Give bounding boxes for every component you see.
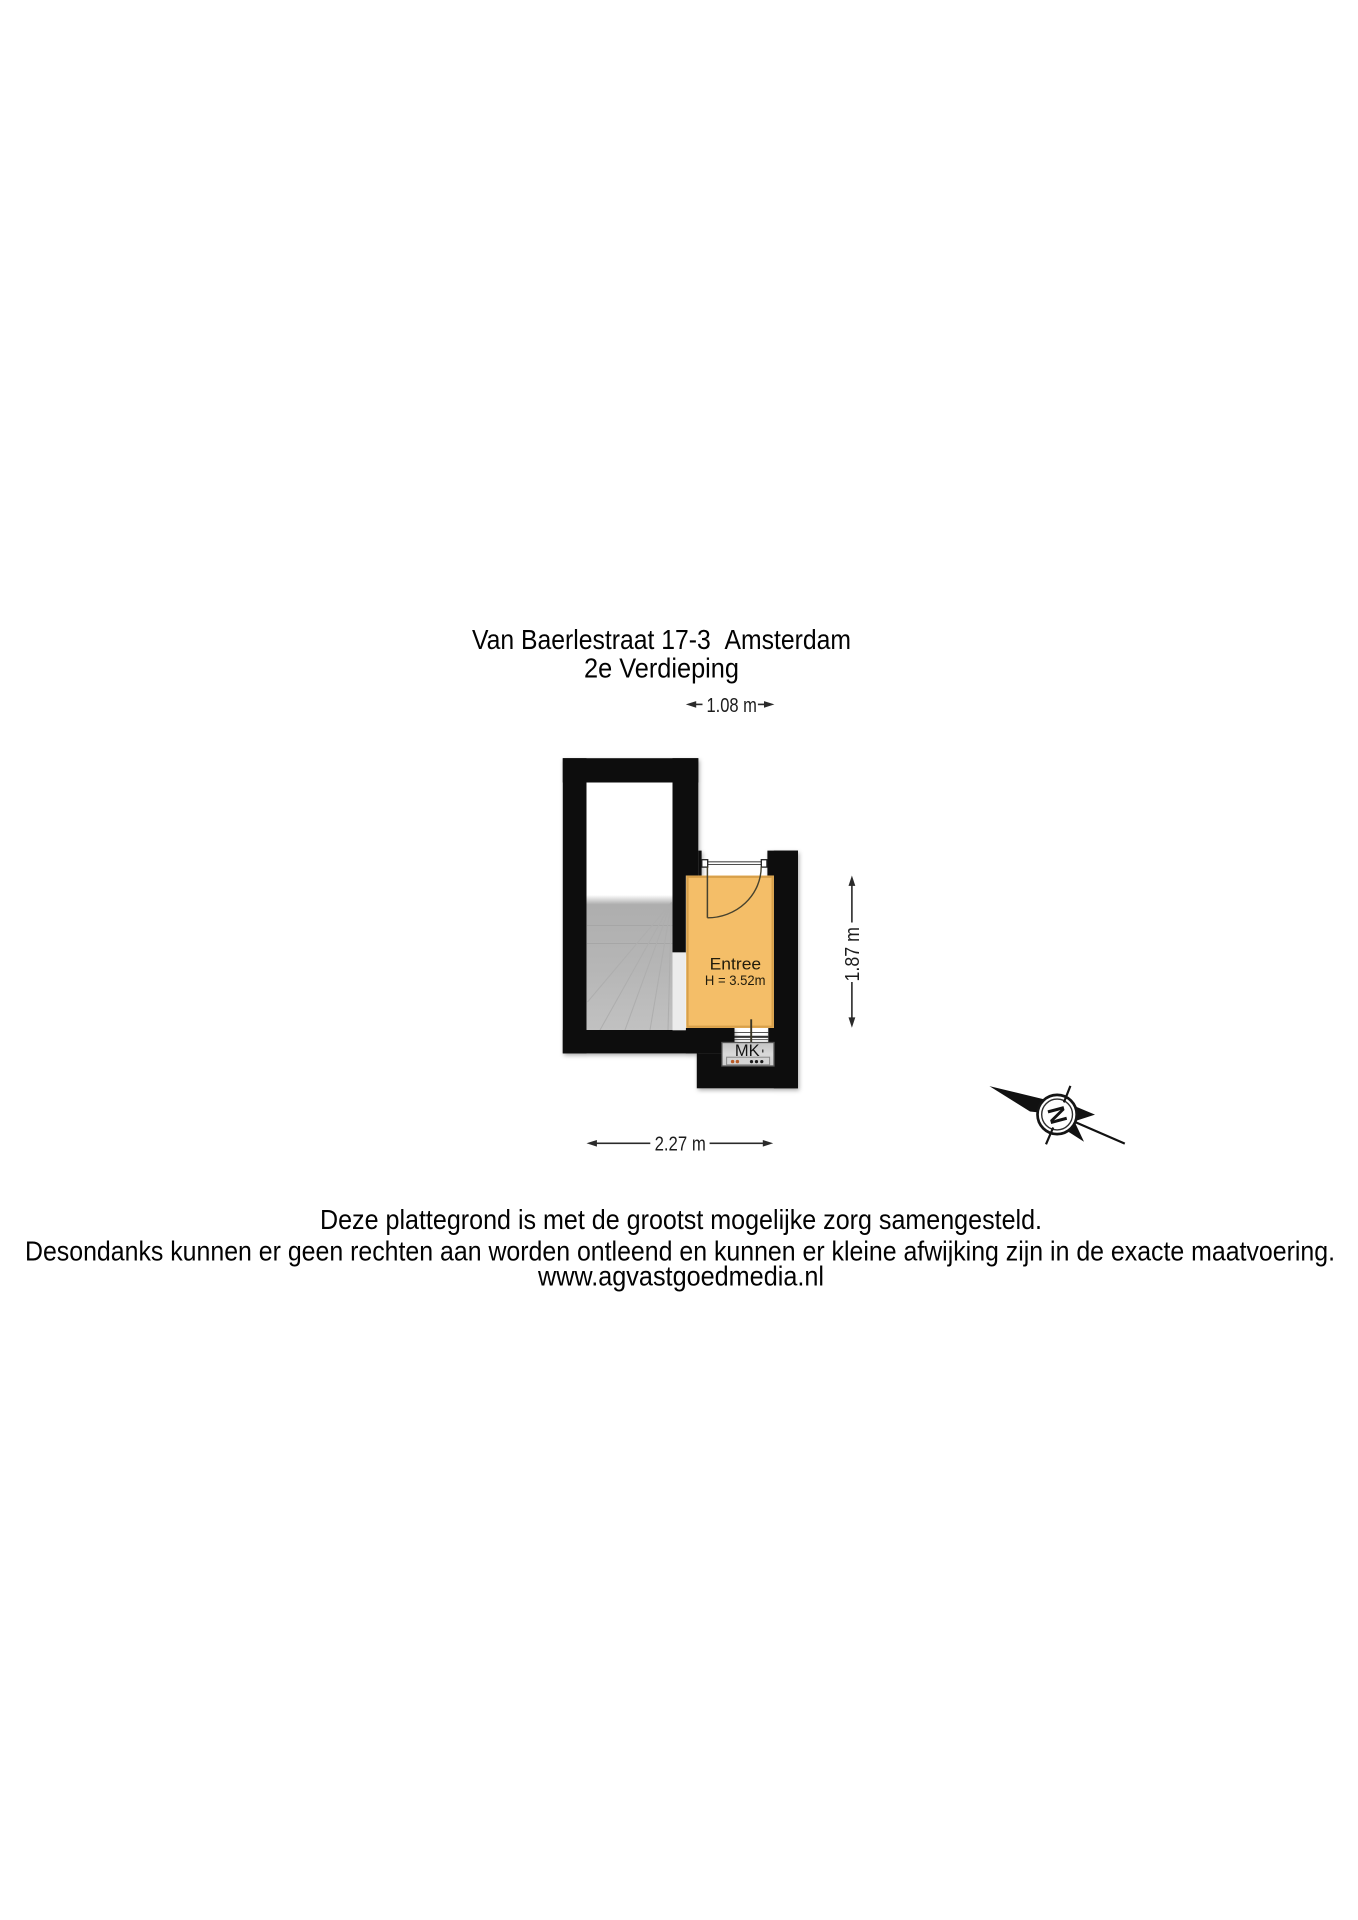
svg-text:www.agvastgoedmedia.nl: www.agvastgoedmedia.nl <box>537 1261 824 1292</box>
svg-text:1.87 m: 1.87 m <box>842 927 864 981</box>
svg-text:Van Baerlestraat 17-3 Amsterd: Van Baerlestraat 17-3 Amsterdam <box>472 624 851 655</box>
svg-text:2e Verdieping: 2e Verdieping <box>584 653 739 684</box>
svg-text:2.27 m: 2.27 m <box>655 1134 706 1156</box>
svg-text:Entree: Entree <box>710 955 762 973</box>
svg-text:H = 3.52m: H = 3.52m <box>705 972 766 988</box>
svg-text:Deze plattegrond is met de gro: Deze plattegrond is met de grootst mogel… <box>320 1204 1042 1235</box>
svg-text:1.08 m: 1.08 m <box>706 695 757 717</box>
